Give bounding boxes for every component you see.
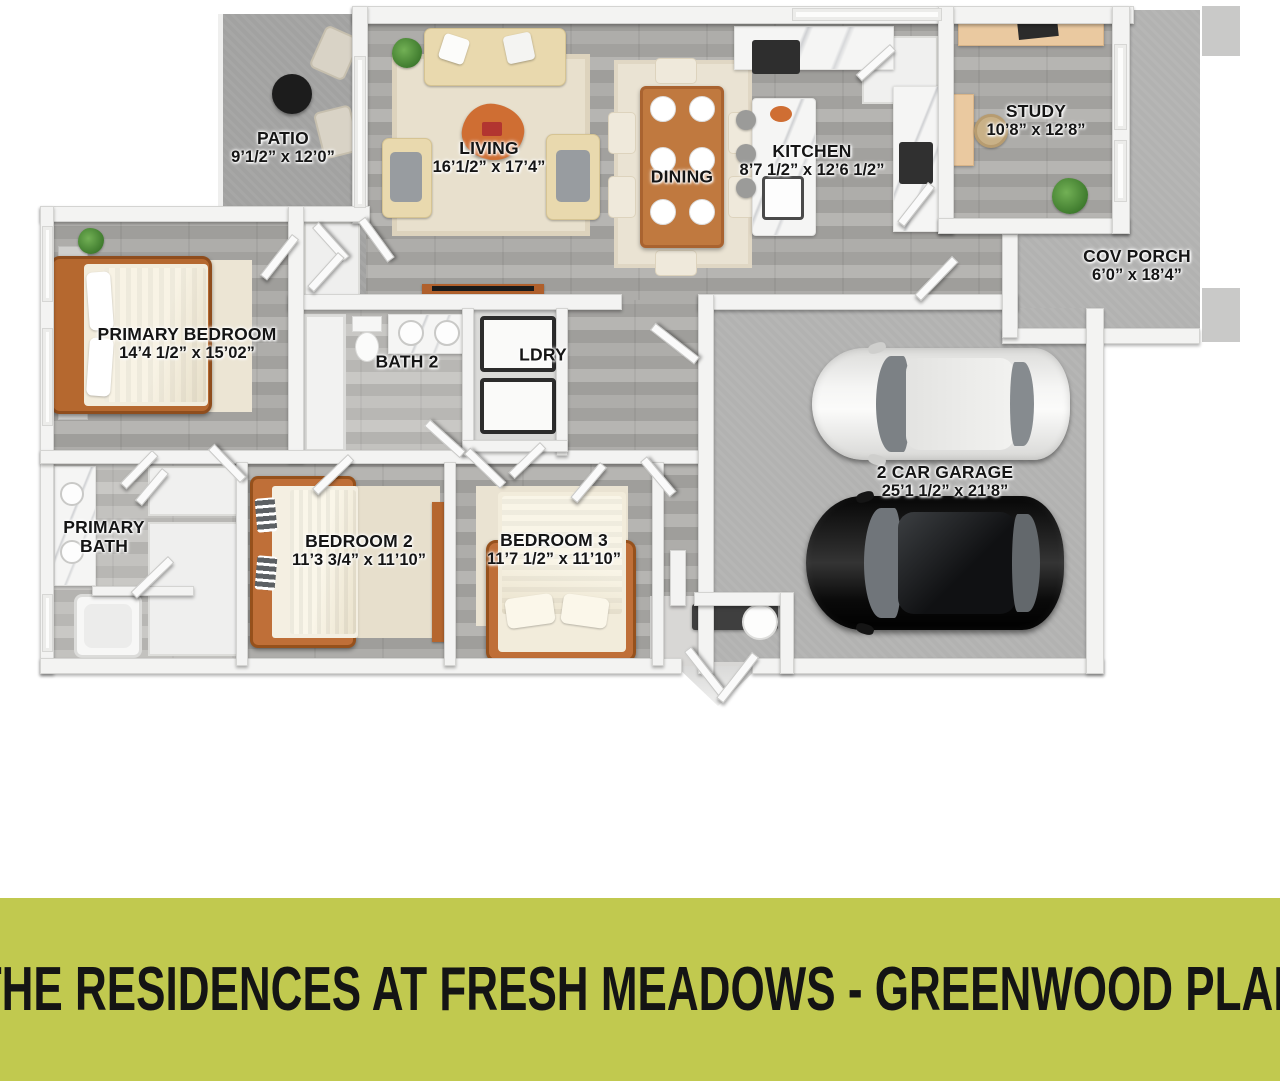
black-car-rear-glass [1012, 514, 1040, 612]
white-car-windshield [876, 356, 910, 452]
wall-garage-right [1086, 308, 1104, 674]
primary-sink-1 [60, 482, 84, 506]
dining-chair-left-2 [608, 176, 636, 218]
wall-garage-top [698, 294, 1018, 310]
primary-bedroom-window-1 [42, 226, 53, 302]
coffee-table-book [482, 122, 502, 136]
island-stool-3 [736, 178, 756, 198]
primary-bedroom-window-2 [42, 328, 53, 426]
wall-primary-bedroom-top [40, 206, 370, 222]
wall-bottom-left [40, 658, 682, 674]
room-label-primary-bath: PRIMARY BATH [45, 518, 163, 556]
bed2-pillow-1 [255, 497, 278, 533]
room-name: PATIO [231, 129, 335, 148]
bath2-shower [304, 314, 346, 452]
wall-laundry-right [556, 308, 568, 456]
room-label-bedroom2: BEDROOM 2 11’3 3/4” x 11’10” [292, 532, 426, 570]
island-stool-1 [736, 110, 756, 130]
sofa-pillow-2 [502, 31, 535, 64]
dining-chair-bottom [655, 250, 697, 276]
room-name: BEDROOM 2 [292, 532, 426, 551]
black-car-windshield [864, 508, 902, 618]
room-name: 2 CAR GARAGE [877, 463, 1014, 482]
wall-bottom-right [752, 658, 1104, 674]
dryer [480, 378, 556, 434]
wall-bedroom2-bedroom3 [444, 462, 456, 666]
bed2-pillow-2 [255, 555, 278, 591]
wall-study-left [938, 6, 954, 234]
room-label-patio: PATIO 9’1/2” x 12’0” [231, 129, 335, 167]
tv [432, 286, 534, 291]
room-name: DINING [651, 168, 713, 187]
dining-chair-left-1 [608, 112, 636, 154]
room-name: STUDY [986, 102, 1085, 121]
room-label-study: STUDY 10’8” x 12’8” [986, 102, 1085, 140]
room-dims: 8’7 1/2” x 12’6 1/2” [740, 161, 885, 180]
porch-step-bottom [1202, 288, 1240, 342]
bath2-sink-2 [434, 320, 460, 346]
wall-primarybath-bedroom2 [236, 462, 248, 666]
wall-garage-left [698, 294, 714, 674]
entry-round-table [742, 604, 778, 640]
wall-laundry-bottom [462, 440, 568, 452]
room-name: COV PORCH [1083, 247, 1191, 266]
study-window-2 [1114, 140, 1127, 202]
bathtub-basin [84, 604, 132, 648]
oven-range [899, 142, 933, 184]
room-dims: 9’1/2” x 12’0” [231, 148, 335, 167]
floor-plan-image: PATIO 9’1/2” x 12’0” LIVING 16’1/2” x 17… [0, 0, 1280, 1081]
room-name: BEDROOM 3 [487, 531, 621, 550]
wall-mid-horizontal [288, 294, 622, 310]
room-label-living: LIVING 16’1/2” x 17’4” [433, 139, 546, 177]
patio-table [272, 74, 312, 114]
primary-pillow-1 [86, 271, 114, 331]
island-sink [762, 176, 804, 220]
room-label-garage: 2 CAR GARAGE 25’1 1/2” x 21’8” [877, 463, 1014, 501]
cooktop [752, 40, 800, 74]
black-car-roof [898, 512, 1016, 614]
wall-bath2-laundry [462, 308, 474, 456]
room-name: KITCHEN [740, 142, 885, 161]
white-car-rear-glass [1010, 362, 1034, 446]
room-name: LDRY [519, 346, 567, 365]
wall-study-bottom [938, 218, 1130, 234]
armchair-left-cushion [390, 152, 422, 202]
wall-top-main [352, 6, 1134, 24]
room-dims: 11’3 3/4” x 11’10” [292, 551, 426, 570]
dining-chair-top [655, 58, 697, 84]
wall-bedroom3-right [652, 462, 664, 666]
bed3-pillow-2 [560, 593, 610, 629]
plate-6 [689, 199, 715, 225]
room-dims: 14’4 1/2” x 15’02” [98, 344, 277, 363]
room-name: PRIMARY BEDROOM [98, 325, 277, 344]
bath2-sink-1 [398, 320, 424, 346]
bath2-toilet-tank [352, 316, 382, 332]
room-label-cov-porch: COV PORCH 6’0” x 18’4” [1083, 247, 1191, 285]
white-car-roof [906, 358, 1014, 450]
room-label-bedroom3: BEDROOM 3 11’7 1/2” x 11’10” [487, 531, 621, 569]
living-window [354, 56, 366, 208]
room-label-bath2: BATH 2 [375, 353, 438, 372]
wall-entry-column [670, 550, 686, 606]
armchair-right-cushion [556, 150, 590, 202]
room-label-kitchen: KITCHEN 8’7 1/2” x 12’6 1/2” [740, 142, 885, 180]
kitchen-window [792, 8, 942, 21]
study-window-1 [1114, 44, 1127, 130]
wall-nook-right [1002, 234, 1018, 338]
room-name: LIVING [433, 139, 546, 158]
room-dims: 11’7 1/2” x 11’10” [487, 550, 621, 569]
room-label-primary-bedroom: PRIMARY BEDROOM 14’4 1/2” x 15’02” [98, 325, 277, 363]
room-label-dining: DINING [651, 168, 713, 187]
fruit-bowl [770, 106, 792, 122]
primary-bath-window [42, 594, 53, 652]
room-dims: 6’0” x 18’4” [1083, 266, 1191, 285]
title-banner: THE RESIDENCES AT FRESH MEADOWS - GREENW… [0, 898, 1280, 1081]
plan-title: THE RESIDENCES AT FRESH MEADOWS - GREENW… [0, 954, 1280, 1025]
room-dims: 10’8” x 12’8” [986, 121, 1085, 140]
floor-plan: PATIO 9’1/2” x 12’0” LIVING 16’1/2” x 17… [0, 0, 1280, 898]
wall-entry-right [780, 592, 794, 674]
hall-floor [566, 300, 702, 460]
plate-1 [650, 96, 676, 122]
room-dims: 16’1/2” x 17’4” [433, 158, 546, 177]
plate-2 [689, 96, 715, 122]
room-label-laundry: LDRY [519, 346, 567, 365]
room-dims: 25’1 1/2” x 21’8” [877, 482, 1014, 501]
white-car [812, 348, 1070, 460]
porch-step-top [1202, 6, 1240, 56]
black-car [806, 496, 1064, 630]
room-name: PRIMARY BATH [45, 518, 163, 556]
wall-entry-top [694, 592, 792, 606]
plate-5 [650, 199, 676, 225]
room-name: BATH 2 [375, 353, 438, 372]
